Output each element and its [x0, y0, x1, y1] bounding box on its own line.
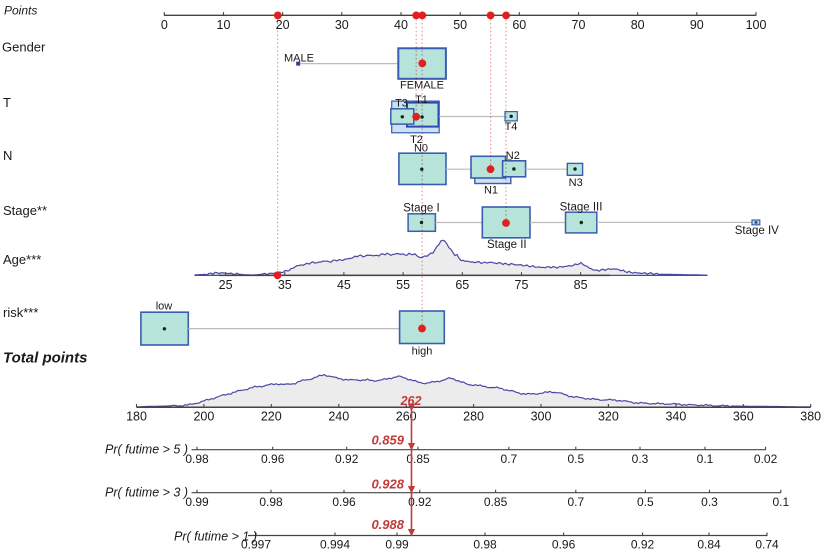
svg-text:240: 240: [328, 410, 349, 424]
svg-text:0.99: 0.99: [185, 495, 209, 509]
svg-text:risk***: risk***: [3, 305, 38, 320]
svg-text:Stage IV: Stage IV: [735, 225, 779, 237]
svg-text:high: high: [412, 346, 433, 358]
svg-text:90: 90: [690, 18, 704, 32]
svg-text:0.99: 0.99: [385, 538, 409, 552]
svg-text:0: 0: [161, 18, 168, 32]
svg-text:200: 200: [193, 410, 214, 424]
svg-text:0.1: 0.1: [697, 452, 714, 466]
svg-text:T3: T3: [395, 98, 408, 110]
svg-text:0.92: 0.92: [631, 538, 655, 552]
svg-text:10: 10: [217, 18, 231, 32]
svg-text:80: 80: [631, 18, 645, 32]
svg-text:Pr( futime > 1 ): Pr( futime > 1 ): [174, 530, 257, 544]
svg-text:50: 50: [453, 18, 467, 32]
svg-text:Stage II: Stage II: [487, 239, 527, 251]
svg-text:0.3: 0.3: [701, 495, 718, 509]
svg-text:75: 75: [515, 278, 529, 292]
svg-text:100: 100: [746, 18, 767, 32]
svg-text:N: N: [3, 148, 12, 163]
svg-text:0.928: 0.928: [371, 477, 404, 492]
svg-text:0.994: 0.994: [320, 538, 350, 552]
svg-text:0.92: 0.92: [335, 452, 359, 466]
svg-text:260: 260: [396, 410, 417, 424]
svg-text:N2: N2: [506, 150, 520, 162]
svg-text:262: 262: [400, 394, 422, 408]
svg-text:360: 360: [733, 410, 754, 424]
svg-text:0.85: 0.85: [406, 452, 430, 466]
svg-text:T: T: [3, 95, 11, 110]
svg-text:0.7: 0.7: [567, 495, 584, 509]
svg-text:180: 180: [126, 410, 147, 424]
svg-text:Pr( futime > 3 ): Pr( futime > 3 ): [105, 486, 188, 500]
svg-text:0.988: 0.988: [371, 517, 404, 532]
svg-text:35: 35: [278, 278, 292, 292]
svg-text:0.859: 0.859: [371, 433, 404, 448]
svg-text:Points: Points: [4, 4, 37, 18]
svg-text:0.96: 0.96: [552, 538, 576, 552]
svg-text:0.3: 0.3: [632, 452, 649, 466]
svg-text:85: 85: [574, 278, 588, 292]
svg-text:N0: N0: [414, 143, 428, 155]
svg-text:70: 70: [572, 18, 586, 32]
svg-text:0.02: 0.02: [754, 452, 778, 466]
svg-text:60: 60: [512, 18, 526, 32]
svg-text:25: 25: [219, 278, 233, 292]
svg-text:320: 320: [598, 410, 619, 424]
svg-text:Total points: Total points: [3, 350, 87, 367]
svg-text:0.98: 0.98: [473, 538, 497, 552]
svg-text:65: 65: [455, 278, 469, 292]
svg-text:220: 220: [261, 410, 282, 424]
svg-text:30: 30: [335, 18, 349, 32]
svg-text:280: 280: [463, 410, 484, 424]
svg-text:0.96: 0.96: [332, 495, 356, 509]
svg-text:N1: N1: [484, 185, 498, 197]
svg-text:Age***: Age***: [3, 252, 41, 267]
svg-text:N3: N3: [569, 177, 583, 189]
svg-text:Pr( futime > 5 ): Pr( futime > 5 ): [105, 443, 188, 457]
svg-text:45: 45: [337, 278, 351, 292]
svg-text:Stage**: Stage**: [3, 203, 47, 218]
svg-text:0.7: 0.7: [501, 452, 518, 466]
svg-text:T4: T4: [505, 121, 518, 133]
svg-text:low: low: [156, 301, 173, 313]
svg-text:300: 300: [531, 410, 552, 424]
svg-text:380: 380: [800, 410, 821, 424]
svg-text:0.98: 0.98: [259, 495, 283, 509]
svg-text:Stage I: Stage I: [403, 203, 439, 215]
svg-text:0.85: 0.85: [484, 495, 508, 509]
svg-text:0.1: 0.1: [772, 495, 789, 509]
svg-text:0.74: 0.74: [755, 538, 779, 552]
svg-text:0.98: 0.98: [185, 452, 209, 466]
svg-text:Gender: Gender: [2, 40, 46, 55]
svg-text:0.96: 0.96: [261, 452, 285, 466]
svg-text:0.84: 0.84: [697, 538, 721, 552]
svg-text:T1: T1: [415, 94, 428, 106]
svg-text:40: 40: [394, 18, 408, 32]
svg-text:Stage III: Stage III: [560, 202, 603, 214]
svg-text:340: 340: [665, 410, 686, 424]
svg-text:0.5: 0.5: [567, 452, 584, 466]
svg-text:55: 55: [396, 278, 410, 292]
svg-text:0.5: 0.5: [637, 495, 654, 509]
